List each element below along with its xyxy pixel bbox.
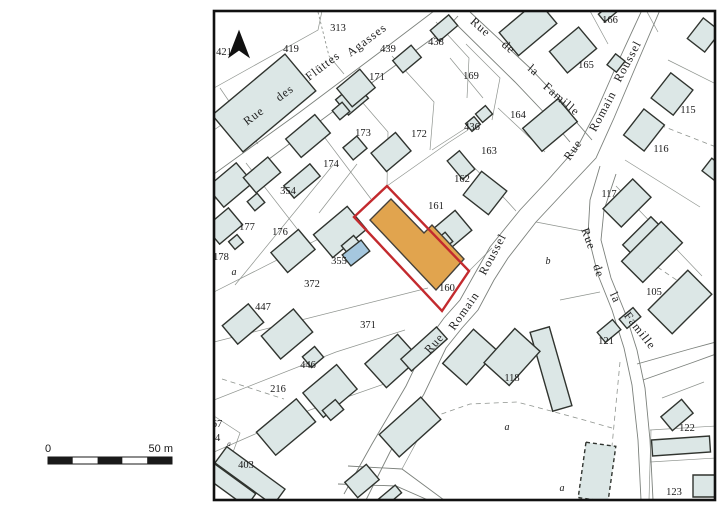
scale-end-label: 50 m <box>149 443 173 455</box>
parcel-label: 115 <box>680 105 695 116</box>
parcel-label: 177 <box>239 222 255 233</box>
parcel-label: 174 <box>323 159 340 170</box>
parcel-label: 176 <box>272 227 288 238</box>
parcel-label: 161 <box>428 201 444 212</box>
parcel-label: 313 <box>330 23 346 34</box>
parcel-label: 160 <box>439 283 455 294</box>
parcel-label: 178 <box>213 252 229 263</box>
parcel-label: 173 <box>355 128 371 139</box>
parcel-label: 122 <box>679 423 695 434</box>
parcel-label: 355 <box>331 256 347 267</box>
parcel-label: 446 <box>300 360 316 371</box>
parcel-label: 105 <box>646 287 662 298</box>
parcel-label: a <box>227 440 231 448</box>
parcel-label: 121 <box>598 336 614 347</box>
cadastral-map: RuedesFlüttesAgassesRuedelaFamilleRueRom… <box>0 0 728 515</box>
parcel-label: 04 <box>210 433 221 444</box>
parcel-label: 162 <box>454 174 470 185</box>
parcel-label: a <box>232 267 237 278</box>
parcel-label: 172 <box>411 129 427 140</box>
parcel-label: 117 <box>601 189 616 200</box>
parcel-label: 164 <box>510 110 527 121</box>
parcel-label: 165 <box>578 60 594 71</box>
scale-start-label: 0 <box>45 443 51 455</box>
parcel-label: a <box>505 422 510 433</box>
parcel-label: 371 <box>360 320 376 331</box>
parcel-label: 123 <box>666 487 682 498</box>
cadastral-plan-page: RuedesFlüttesAgassesRuedelaFamilleRueRom… <box>0 0 728 515</box>
parcel-label: a <box>560 483 565 494</box>
parcel-label: 116 <box>653 144 668 155</box>
parcel-label: 436 <box>464 122 480 133</box>
parcel-label: 118 <box>504 373 519 384</box>
parcel-label: b <box>546 256 551 267</box>
scale-bar: 0 50 m <box>45 443 173 464</box>
parcel-label: 169 <box>463 71 479 82</box>
parcel-label: 216 <box>270 384 286 395</box>
parcel-label: 447 <box>255 302 271 313</box>
parcel-label: 403 <box>238 460 254 471</box>
parcel-label: 372 <box>304 279 320 290</box>
parcel-label: 354 <box>280 186 297 197</box>
parcel-label: 438 <box>428 37 444 48</box>
parcel-label: 439 <box>380 44 396 55</box>
parcel-label: 419 <box>283 44 299 55</box>
parcel-label: 171 <box>369 72 385 83</box>
parcel-label: 166 <box>602 15 618 26</box>
parcel-label: 163 <box>481 146 497 157</box>
